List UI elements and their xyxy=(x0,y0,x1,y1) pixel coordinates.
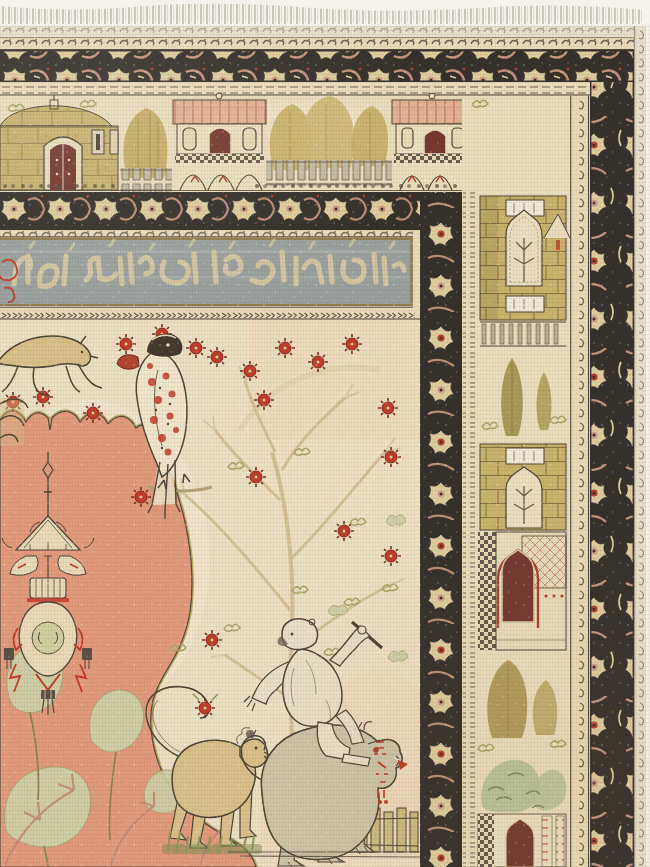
wear-speckle-overlay xyxy=(0,26,650,867)
top-fringe xyxy=(0,0,644,26)
rug-photograph xyxy=(0,0,650,867)
rug-image xyxy=(0,0,650,867)
